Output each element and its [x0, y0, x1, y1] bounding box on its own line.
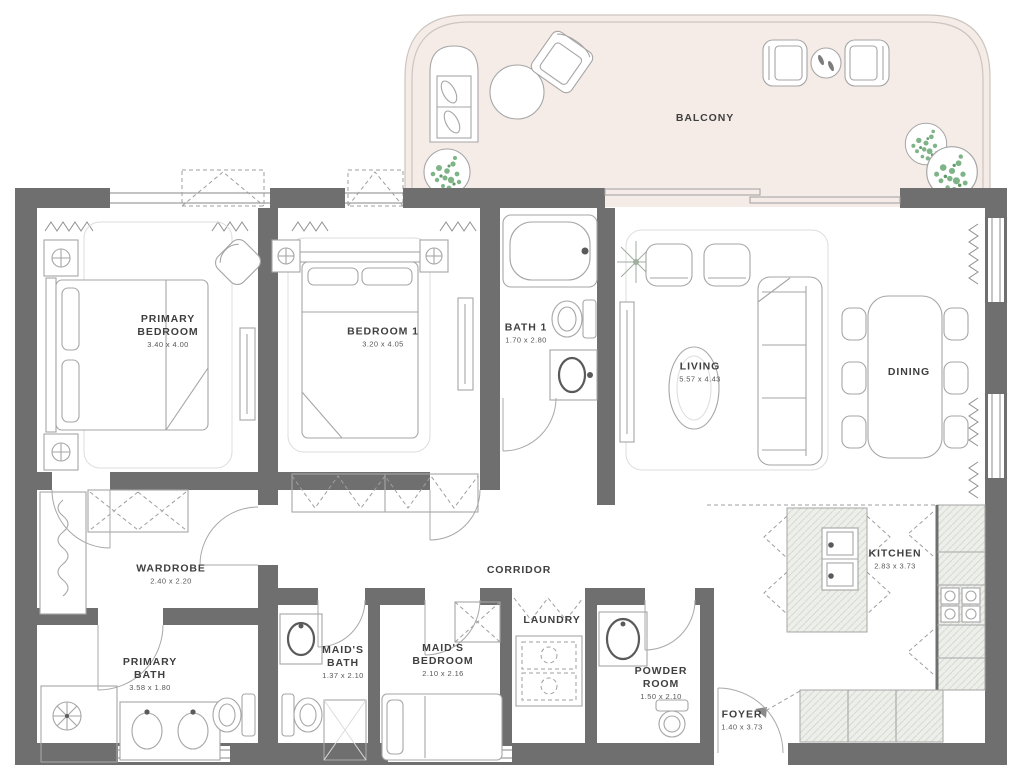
- door-swing-bath1: [503, 398, 556, 451]
- ceiling-light-icon: [278, 248, 294, 264]
- maids-bed: [382, 694, 502, 760]
- dining-table: [868, 296, 942, 458]
- foyer-cabinet: [755, 690, 943, 742]
- floor-plan-drawing: [0, 0, 1019, 778]
- armchair: [704, 244, 750, 286]
- vanity-sink: [280, 614, 322, 664]
- ceiling-light-icon: [52, 443, 70, 461]
- door-swing-primary-bath: [98, 625, 163, 690]
- toilet: [213, 694, 255, 736]
- corner-chair: [212, 236, 264, 288]
- floor-plan: PRIMARY BEDROOM 3.40 x 4.00 BEDROOM 1 3.…: [0, 0, 1019, 778]
- toilet: [282, 694, 322, 736]
- double-vanity: [120, 702, 220, 760]
- door-swing-powder-room: [645, 600, 695, 650]
- door-swing-entrance: [718, 688, 783, 753]
- armchair: [646, 244, 692, 286]
- door-swing-maids-bath: [318, 600, 365, 647]
- washer-dryer: [516, 636, 582, 706]
- toilet: [656, 700, 688, 737]
- kitchen-island: [787, 508, 867, 632]
- dresser: [458, 298, 473, 390]
- ceiling-light-icon: [426, 248, 442, 264]
- vanity-sink: [550, 350, 597, 400]
- sofa: [758, 277, 822, 465]
- wardrobe-unit: [40, 490, 188, 614]
- bedroom1-bed: [300, 252, 420, 438]
- balcony-sofa: [430, 46, 478, 142]
- toilet: [552, 300, 596, 338]
- dresser: [240, 328, 255, 420]
- balcony-armchair: [845, 40, 889, 86]
- primary-bed: [46, 278, 208, 432]
- ceiling-light-icon: [52, 249, 70, 267]
- balcony-area: [405, 15, 990, 207]
- balcony-armchair: [763, 40, 807, 86]
- bathtub: [503, 215, 597, 287]
- tv-console: [620, 302, 634, 442]
- powder-sink: [599, 612, 647, 666]
- closet: [455, 602, 500, 642]
- coffee-table: [669, 347, 719, 429]
- balcony-side-table: [811, 48, 841, 78]
- bifold-door-symbol: [514, 598, 583, 620]
- door-swing-wardrobe: [200, 507, 258, 565]
- door-swing-bedroom1: [430, 490, 480, 540]
